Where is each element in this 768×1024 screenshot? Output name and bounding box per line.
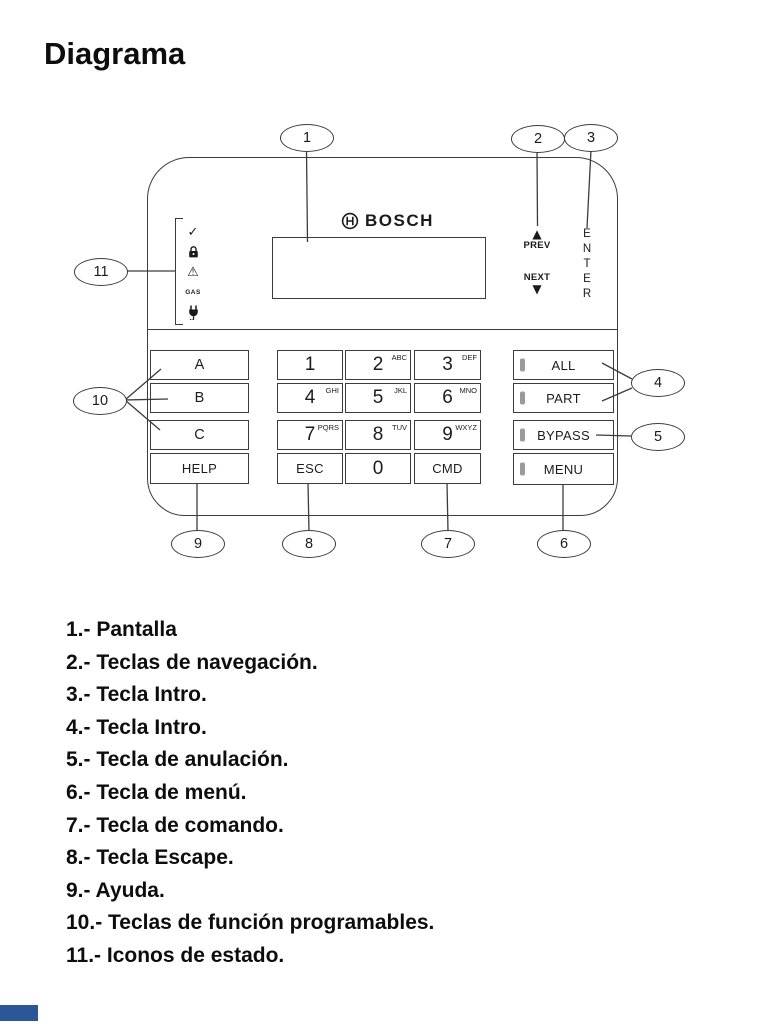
callout-2: 2 [511,125,565,153]
callout-7: 7 [421,530,475,558]
led-indicator [520,359,525,372]
legend-item: 6.- Tecla de menú. [66,777,434,810]
bosch-logo: BOSCH [341,211,434,231]
gas-label: GAS [185,282,201,302]
legend-item: 10.- Teclas de función programables. [66,907,434,940]
key-part: PART [513,383,614,413]
slide: Diagrama BOSCH ✓ ⚠ GAS [0,0,768,1024]
key-help: HELP [150,453,249,484]
callout-8: 8 [282,530,336,558]
key-b: B [150,383,249,413]
legend-item: 1.- Pantalla [66,614,434,647]
key-cmd: CMD [414,453,481,484]
nav-keys: ▲ PREV NEXT ▼ [514,228,560,295]
key-5: 5JKL [345,383,411,413]
key-bypass: BYPASS [513,420,614,450]
key-4: 4GHI [277,383,343,413]
footer-accent-bar [0,1005,38,1021]
status-icons: ✓ ⚠ GAS [184,222,202,322]
key-3: 3DEF [414,350,481,380]
key-a: A [150,350,249,380]
callout-1: 1 [280,124,334,152]
key-9: 9WXYZ [414,420,481,450]
power-plug-icon [187,302,200,322]
legend-item: 7.- Tecla de comando. [66,810,434,843]
check-icon: ✓ [188,222,199,242]
legend-item: 3.- Tecla Intro. [66,679,434,712]
key-8: 8TUV [345,420,411,450]
key-esc: ESC [277,453,343,484]
warning-icon: ⚠ [187,262,199,282]
led-indicator [520,392,525,405]
callout-10: 10 [73,387,127,415]
key-1: 1 [277,350,343,380]
callout-9: 9 [171,530,225,558]
key-all: ALL [513,350,614,380]
legend-item: 4.- Tecla Intro. [66,712,434,745]
prev-arrow-icon: ▲ [532,228,541,240]
bosch-anchor-icon [341,212,359,230]
legend-item: 2.- Teclas de navegación. [66,647,434,680]
callout-6: 6 [537,530,591,558]
callout-3: 3 [564,124,618,152]
page-title: Diagrama [44,36,185,72]
key-7: 7PQRS [277,420,343,450]
bosch-wordmark: BOSCH [365,211,434,231]
display-screen [272,237,486,299]
key-0: 0 [345,453,411,484]
legend-item: 5.- Tecla de anulación. [66,744,434,777]
key-menu: MENU [513,453,614,485]
legend-list: 1.- Pantalla 2.- Teclas de navegación. 3… [66,614,434,973]
legend-item: 11.- Iconos de estado. [66,940,434,973]
callout-5: 5 [631,423,685,451]
prev-label: PREV [523,240,550,251]
led-indicator [520,463,525,476]
callout-4: 4 [631,369,685,397]
lock-icon [188,242,199,262]
callout-11: 11 [74,258,128,286]
status-icons-bracket [175,218,183,325]
key-2: 2ABC [345,350,411,380]
next-arrow-icon: ▼ [532,283,541,295]
keypad-divider [147,329,618,330]
key-6: 6MNO [414,383,481,413]
key-c: C [150,420,249,450]
legend-item: 8.- Tecla Escape. [66,842,434,875]
led-indicator [520,429,525,442]
legend-item: 9.- Ayuda. [66,875,434,908]
enter-key-label: E N T E R [578,227,596,302]
